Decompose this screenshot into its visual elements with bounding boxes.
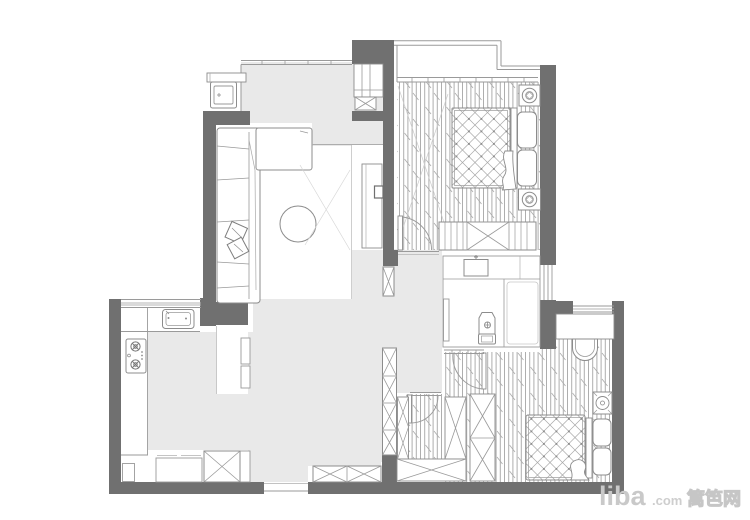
- svg-text:liba: liba: [599, 481, 646, 511]
- svg-text:.com: .com: [652, 493, 682, 508]
- svg-text:篱笆网: 篱笆网: [687, 488, 741, 509]
